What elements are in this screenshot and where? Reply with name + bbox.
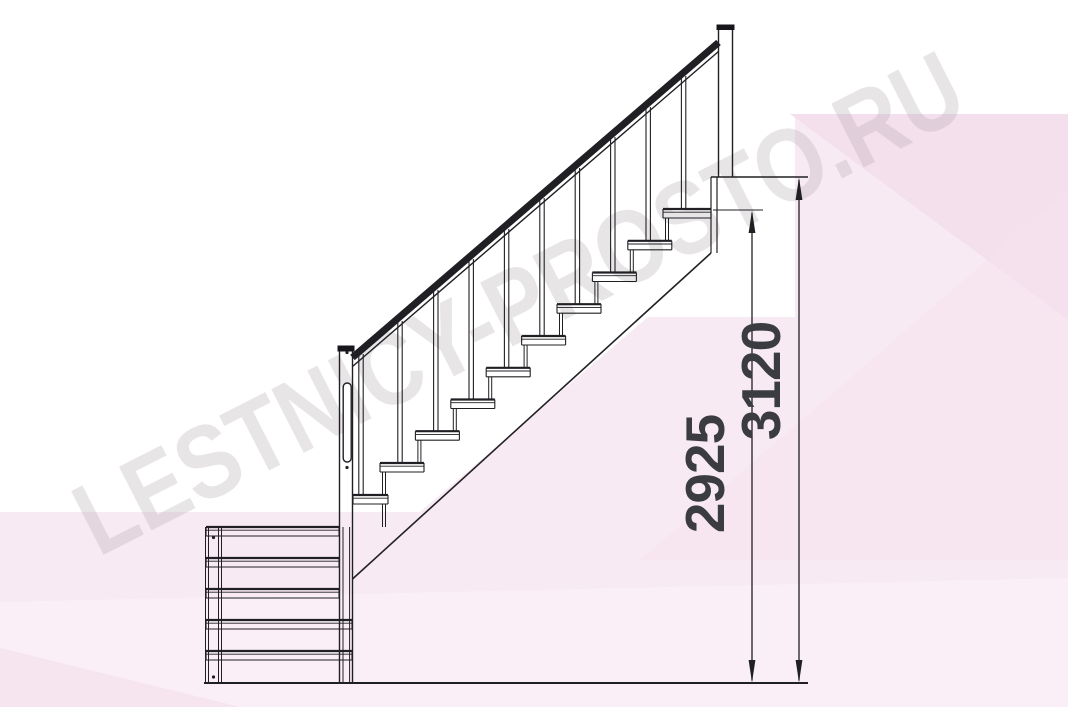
screw-dot xyxy=(212,536,215,539)
screw-dot xyxy=(345,351,348,354)
stair-drawing: LESTNICY-PROSTO.RU 2925 3120 xyxy=(0,0,1068,707)
top-post-cap xyxy=(717,25,735,31)
drawing-page: LESTNICY-PROSTO.RU 2925 3120 xyxy=(0,0,1068,707)
screw-dot xyxy=(212,675,215,678)
newel-post-cap xyxy=(338,346,355,352)
screw-dot xyxy=(345,466,348,469)
newel-handle xyxy=(343,383,351,462)
dimension-value-3120: 3120 xyxy=(730,322,792,440)
dimension-value-2925: 2925 xyxy=(674,414,736,533)
